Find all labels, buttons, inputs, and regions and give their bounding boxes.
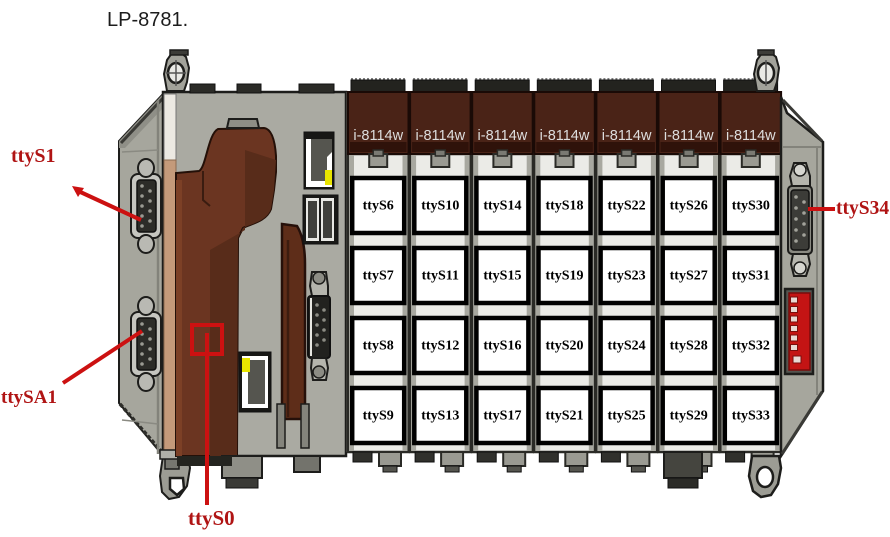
svg-text:ttyS25: ttyS25	[608, 409, 646, 424]
svg-text:ttyS32: ttyS32	[732, 339, 770, 354]
svg-text:ttyS17: ttyS17	[483, 409, 521, 424]
svg-text:i-8114w: i-8114w	[353, 128, 403, 144]
svg-text:ttyS13: ttyS13	[421, 409, 459, 424]
svg-text:LP-8781.: LP-8781.	[107, 9, 188, 31]
svg-text:ttyS7: ttyS7	[363, 269, 394, 284]
svg-text:ttyS18: ttyS18	[545, 199, 583, 214]
svg-text:i-8114w: i-8114w	[540, 128, 590, 144]
svg-text:ttySA1: ttySA1	[1, 387, 57, 408]
svg-text:ttyS27: ttyS27	[670, 269, 708, 284]
svg-text:ttyS20: ttyS20	[545, 339, 583, 354]
svg-text:ttyS22: ttyS22	[608, 199, 646, 214]
svg-text:ttyS10: ttyS10	[421, 199, 459, 214]
svg-text:i-8114w: i-8114w	[602, 128, 652, 144]
svg-text:ttyS29: ttyS29	[670, 409, 708, 424]
svg-text:ttyS9: ttyS9	[363, 409, 394, 424]
svg-text:ttyS16: ttyS16	[483, 339, 521, 354]
svg-text:i-8114w: i-8114w	[726, 128, 776, 144]
svg-text:ttyS19: ttyS19	[545, 269, 583, 284]
svg-text:ttyS31: ttyS31	[732, 269, 770, 284]
svg-text:ttyS26: ttyS26	[670, 199, 708, 214]
svg-text:i-8114w: i-8114w	[664, 128, 714, 144]
svg-text:ttyS24: ttyS24	[608, 339, 646, 354]
svg-text:ttyS8: ttyS8	[363, 339, 394, 354]
svg-text:ttyS33: ttyS33	[732, 409, 770, 424]
svg-text:ttyS1: ttyS1	[11, 145, 55, 167]
svg-text:ttyS28: ttyS28	[670, 339, 708, 354]
svg-text:ttyS15: ttyS15	[483, 269, 521, 284]
svg-text:ttyS14: ttyS14	[483, 199, 521, 214]
svg-text:ttyS30: ttyS30	[732, 199, 770, 214]
svg-text:ttyS21: ttyS21	[545, 409, 583, 424]
svg-text:i-8114w: i-8114w	[415, 128, 465, 144]
svg-text:ttyS23: ttyS23	[608, 269, 646, 284]
svg-text:ttyS11: ttyS11	[422, 269, 459, 284]
svg-text:ttyS6: ttyS6	[363, 199, 394, 214]
svg-text:i-8114w: i-8114w	[478, 128, 528, 144]
svg-text:ttyS34: ttyS34	[836, 198, 889, 219]
svg-text:ttyS12: ttyS12	[421, 339, 459, 354]
svg-text:ttyS0: ttyS0	[188, 506, 235, 530]
